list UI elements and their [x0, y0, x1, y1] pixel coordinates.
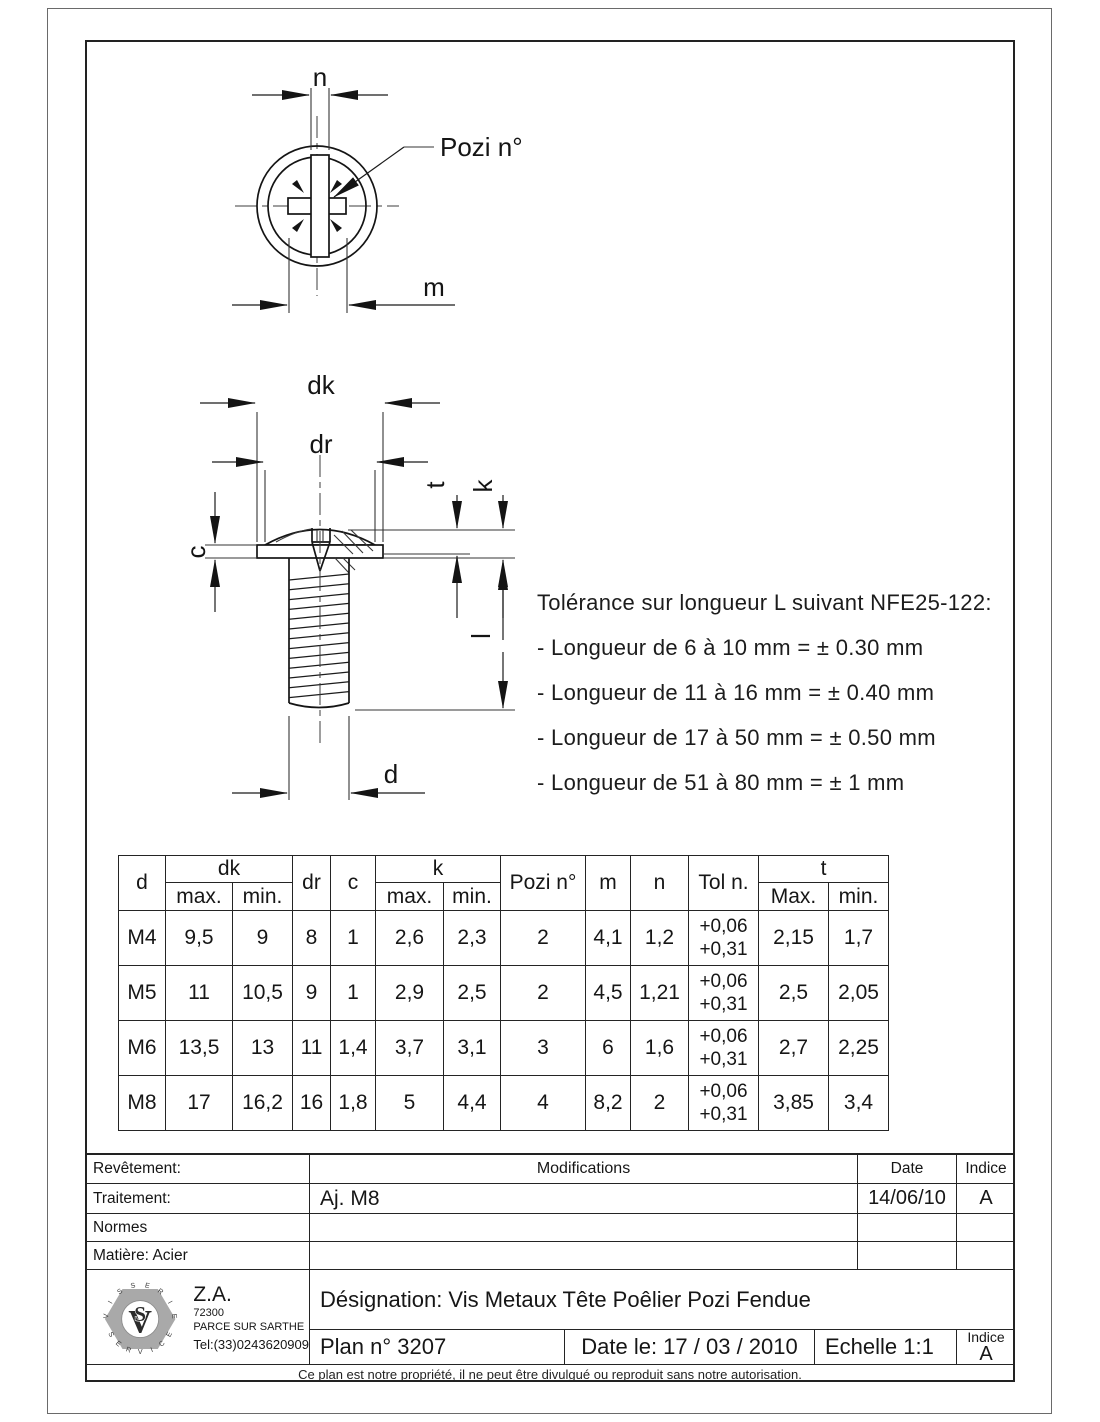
tolerance-line: - Longueur de 51 à 80 mm = ± 1 mm: [537, 760, 1015, 805]
dim-label-n: n: [313, 62, 327, 92]
dimension-cell: 8: [293, 911, 331, 966]
dimension-cell: 3: [501, 1021, 586, 1076]
dimension-cell: M6: [119, 1021, 166, 1076]
visserie-service-logo: V S VISSERIE SERVICE: [89, 1272, 191, 1365]
dimension-cell: 1: [331, 911, 376, 966]
dimension-cell: 10,5: [233, 966, 293, 1021]
tolerance-title: Tolérance sur longueur L suivant NFE25-1…: [537, 580, 1015, 625]
pozi-tick-nw: [292, 180, 304, 193]
tolerance-line: - Longueur de 17 à 50 mm = ± 0.50 mm: [537, 715, 1015, 760]
col-header-pozi: Pozi n°: [501, 856, 586, 911]
modification-indice: A: [957, 1184, 1015, 1214]
dimension-cell: 3,85: [759, 1076, 829, 1131]
dim-label-l: l: [466, 633, 496, 639]
dimension-cell: 16: [293, 1076, 331, 1131]
tolerance-note: Tolérance sur longueur L suivant NFE25-1…: [537, 580, 1015, 805]
dimension-cell: 1,4: [331, 1021, 376, 1076]
col-header-dr: dr: [293, 856, 331, 911]
svg-text:S: S: [130, 1282, 136, 1290]
dimension-cell: 2,6: [376, 911, 444, 966]
tolerance-cell: +0,06+0,31: [689, 966, 759, 1021]
company-address: Z.A. 72300 PARCE SUR SARTHE Tel:(33)0243…: [193, 1284, 309, 1351]
table-row: M613,513111,43,73,1361,6+0,06+0,312,72,2…: [119, 1021, 889, 1076]
col-header-d: d: [119, 856, 166, 911]
svg-text:V: V: [138, 1349, 143, 1356]
dimension-cell: 2,7: [759, 1021, 829, 1076]
dimension-cell: M5: [119, 966, 166, 1021]
dimension-cell: 2,25: [829, 1021, 889, 1076]
dim-label-m: m: [423, 272, 445, 302]
col-header-dk: dk: [166, 856, 293, 883]
company-phone: Tel:(33)0243620909: [193, 1338, 309, 1351]
dimension-cell: 11: [166, 966, 233, 1021]
svg-text:I: I: [166, 1300, 173, 1305]
svg-text:E: E: [114, 1340, 122, 1349]
dimension-cell: M4: [119, 911, 166, 966]
dimension-cell: 3,1: [444, 1021, 501, 1076]
tolerance-cell: +0,06+0,31: [689, 1021, 759, 1076]
monogram-s: S: [134, 1302, 146, 1326]
dimension-cell: 16,2: [233, 1076, 293, 1131]
col-header-dk-max: max.: [166, 883, 233, 911]
dimension-cell: 2: [631, 1076, 689, 1131]
dim-label-t: t: [420, 481, 450, 489]
svg-text:E: E: [166, 1331, 175, 1339]
dimension-cell: 5: [376, 1076, 444, 1131]
plan-number: Plan n° 3207: [310, 1330, 565, 1365]
col-header-dk-min: min.: [233, 883, 293, 911]
col-header-t-min: min.: [829, 883, 889, 911]
dimension-cell: 2,9: [376, 966, 444, 1021]
table-row: M81716,2161,854,448,22+0,06+0,313,853,4: [119, 1076, 889, 1131]
col-header-m: m: [586, 856, 631, 911]
svg-text:S: S: [106, 1331, 115, 1339]
modification-entry: [310, 1214, 858, 1242]
dimension-cell: 3,7: [376, 1021, 444, 1076]
dimension-cell: 2: [501, 966, 586, 1021]
col-header-c: c: [331, 856, 376, 911]
tolerance-cell: +0,06+0,31: [689, 1076, 759, 1131]
revetement-label: Revêtement:: [85, 1155, 310, 1184]
matiere-label: Matière: Acier: [85, 1242, 310, 1270]
dimension-cell: 1,8: [331, 1076, 376, 1131]
company-zip: 72300: [193, 1308, 309, 1319]
dimension-cell: 4: [501, 1076, 586, 1131]
dimension-cell: 2,3: [444, 911, 501, 966]
dimension-cell: 2,15: [759, 911, 829, 966]
pozi-tick-se: [330, 219, 342, 232]
col-header-t-max: Max.: [759, 883, 829, 911]
indice-header: Indice: [957, 1155, 1015, 1184]
table-row: M49,59812,62,324,11,2+0,06+0,312,151,7: [119, 911, 889, 966]
modification-date: 14/06/10: [858, 1184, 957, 1214]
company-logo-cell: V S VISSERIE SERVICE Z.A. 72300 PARCE SU…: [85, 1270, 310, 1365]
thread-lines: [289, 574, 349, 698]
modification-entry: Aj. M8: [310, 1184, 858, 1214]
scale: Echelle 1:1: [815, 1330, 957, 1365]
dimension-cell: 1,6: [631, 1021, 689, 1076]
company-city: PARCE SUR SARTHE: [193, 1322, 309, 1333]
dimension-cell: 9: [293, 966, 331, 1021]
tolerance-cell: +0,06+0,31: [689, 911, 759, 966]
dimension-cell: 4,4: [444, 1076, 501, 1131]
modification-indice: [957, 1242, 1015, 1270]
dim-label-k: k: [468, 479, 498, 493]
modification-entry: [310, 1242, 858, 1270]
modification-date: [858, 1242, 957, 1270]
dimension-cell: 2: [501, 911, 586, 966]
col-header-k-min: min.: [444, 883, 501, 911]
top-view: n Pozi n° m: [232, 62, 523, 313]
dim-label-dr: dr: [309, 429, 332, 459]
modification-date: [858, 1214, 957, 1242]
col-header-n: n: [631, 856, 689, 911]
dimension-cell: 1,2: [631, 911, 689, 966]
modifications-header: Modifications: [310, 1155, 858, 1184]
dimension-cell: 17: [166, 1076, 233, 1131]
dimension-cell: 1,7: [829, 911, 889, 966]
dimension-cell: 4,1: [586, 911, 631, 966]
indice-box-value: A: [979, 1345, 992, 1363]
pozi-tick-sw: [292, 219, 304, 232]
dimension-cell: 9: [233, 911, 293, 966]
dimension-cell: 13,5: [166, 1021, 233, 1076]
svg-text:I: I: [107, 1300, 114, 1305]
plan-date: Date le: 17 / 03 / 2010: [565, 1330, 815, 1365]
drawing-sheet: n Pozi n° m dk dr: [0, 0, 1100, 1422]
pozi-tick-ne: [330, 180, 342, 193]
dimension-cell: M8: [119, 1076, 166, 1131]
dimension-cell: 2,5: [444, 966, 501, 1021]
tolerance-line: - Longueur de 11 à 16 mm = ± 0.40 mm: [537, 670, 1015, 715]
title-block: Revêtement: Traitement: Normes Matière: …: [85, 1153, 1015, 1382]
dimension-cell: 2,5: [759, 966, 829, 1021]
dim-table-body: M49,59812,62,324,11,2+0,06+0,312,151,7M5…: [119, 911, 889, 1131]
dim-label-dk: dk: [307, 370, 335, 400]
col-header-k-max: max.: [376, 883, 444, 911]
col-header-k: k: [376, 856, 501, 883]
date-header: Date: [858, 1155, 957, 1184]
tolerance-line: - Longueur de 6 à 10 mm = ± 0.30 mm: [537, 625, 1015, 670]
dimension-cell: 4,5: [586, 966, 631, 1021]
svg-text:V: V: [103, 1313, 110, 1319]
dimension-cell: 9,5: [166, 911, 233, 966]
dimension-cell: 11: [293, 1021, 331, 1076]
dimension-cell: 1: [331, 966, 376, 1021]
slot: [311, 155, 329, 257]
dimension-cell: 3,4: [829, 1076, 889, 1131]
dim-label-d: d: [384, 759, 398, 789]
normes-label: Normes: [85, 1214, 310, 1242]
dimension-cell: 6: [586, 1021, 631, 1076]
property-notice: Ce plan est notre propriété, il ne peut …: [85, 1365, 1015, 1384]
indice-box: Indice A: [957, 1330, 1015, 1365]
dimension-cell: 2,05: [829, 966, 889, 1021]
col-header-tol: Tol n.: [689, 856, 759, 911]
col-header-t: t: [759, 856, 889, 883]
company-za: Z.A.: [193, 1284, 309, 1305]
svg-text:E: E: [170, 1313, 177, 1319]
table-row: M51110,5912,92,524,51,21+0,06+0,312,52,0…: [119, 966, 889, 1021]
traitement-label: Traitement:: [85, 1184, 310, 1214]
pozi-callout-label: Pozi n°: [440, 132, 523, 162]
modification-indice: [957, 1214, 1015, 1242]
designation: Désignation: Vis Metaux Tête Poêlier Poz…: [310, 1270, 1015, 1330]
dimension-cell: 1,21: [631, 966, 689, 1021]
side-view: dk dr: [181, 370, 515, 800]
dim-label-c: c: [181, 546, 211, 559]
dimension-cell: 13: [233, 1021, 293, 1076]
svg-text:C: C: [158, 1340, 166, 1349]
dimension-cell: 8,2: [586, 1076, 631, 1131]
dimension-table: d dk dr c k Pozi n° m n Tol n. t max. mi…: [118, 855, 889, 1131]
svg-text:R: R: [125, 1346, 132, 1354]
